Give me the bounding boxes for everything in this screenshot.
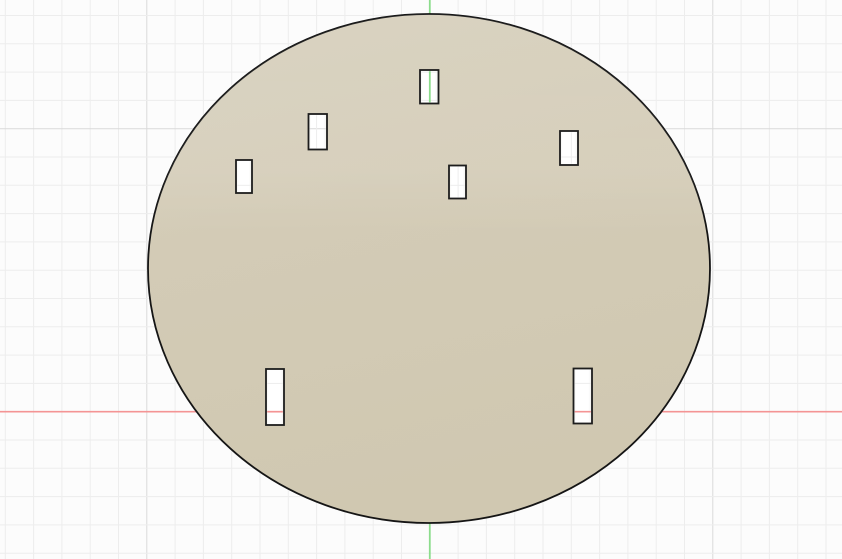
hole-interior — [574, 369, 593, 424]
hole-bottom-left[interactable] — [266, 369, 284, 425]
hole-interior — [309, 114, 328, 150]
hole-top-center[interactable] — [420, 70, 439, 104]
hole-bottom-right[interactable] — [574, 369, 593, 424]
viewport-canvas — [0, 0, 842, 559]
hole-upper-left[interactable] — [309, 114, 328, 150]
cad-viewport[interactable] — [0, 0, 842, 559]
hole-right[interactable] — [560, 131, 578, 165]
hole-interior — [449, 166, 466, 199]
hole-left[interactable] — [236, 160, 252, 193]
hole-center[interactable] — [449, 166, 466, 199]
hole-interior — [236, 160, 252, 193]
hole-interior — [560, 131, 578, 165]
hole-interior — [266, 369, 284, 425]
